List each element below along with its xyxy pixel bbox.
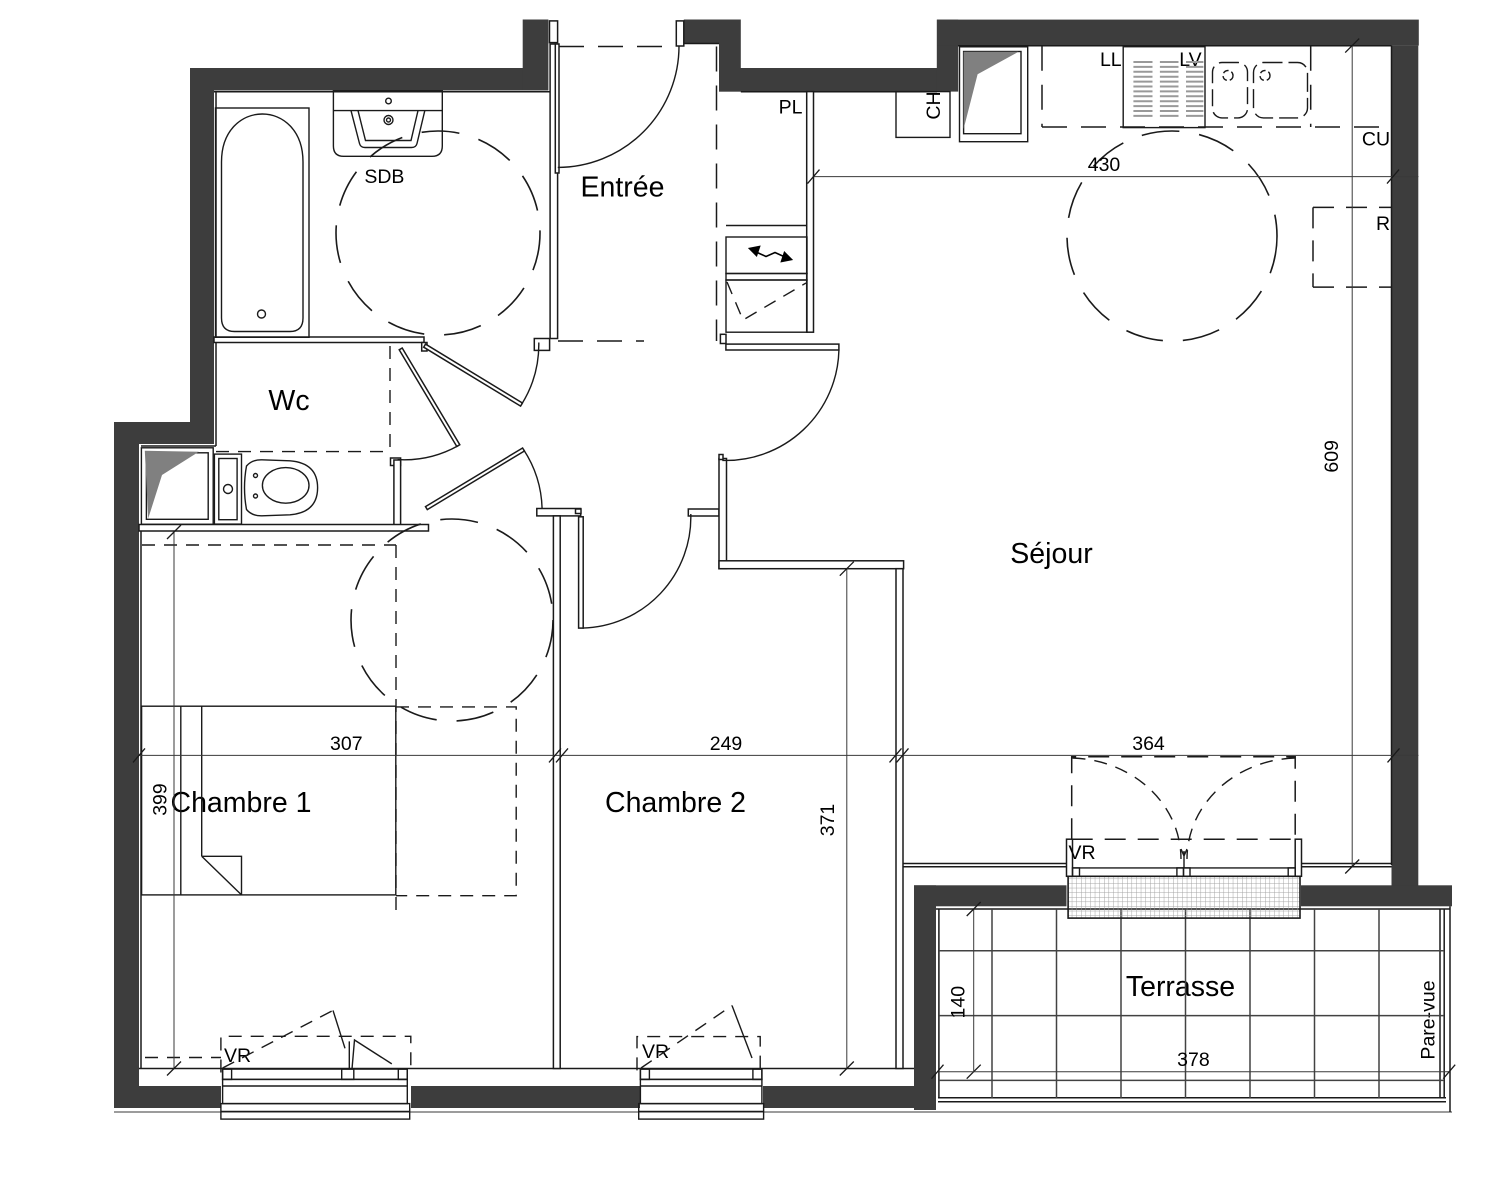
- svg-text:Chambre 2: Chambre 2: [605, 787, 746, 819]
- svg-text:364: 364: [1132, 733, 1165, 755]
- svg-text:371: 371: [817, 804, 839, 837]
- svg-text:R: R: [1376, 213, 1390, 235]
- svg-text:140: 140: [948, 986, 970, 1019]
- svg-text:307: 307: [330, 733, 363, 755]
- svg-text:CH: CH: [923, 91, 945, 119]
- svg-text:Terrasse: Terrasse: [1126, 971, 1235, 1003]
- svg-text:430: 430: [1088, 154, 1121, 176]
- svg-text:378: 378: [1177, 1049, 1210, 1071]
- svg-text:Entrée: Entrée: [581, 172, 665, 204]
- svg-text:SDB: SDB: [364, 166, 404, 188]
- svg-text:Séjour: Séjour: [1010, 538, 1093, 570]
- svg-text:Pare-vue: Pare-vue: [1418, 980, 1440, 1059]
- svg-text:399: 399: [149, 783, 171, 816]
- svg-text:Wc: Wc: [268, 385, 309, 417]
- svg-text:PL: PL: [779, 97, 803, 119]
- svg-text:609: 609: [1321, 440, 1343, 473]
- svg-text:Chambre 1: Chambre 1: [171, 787, 312, 819]
- svg-text:249: 249: [710, 733, 743, 755]
- svg-text:LL: LL: [1100, 49, 1122, 71]
- svg-text:VR: VR: [1069, 842, 1096, 864]
- svg-text:CU: CU: [1362, 129, 1390, 151]
